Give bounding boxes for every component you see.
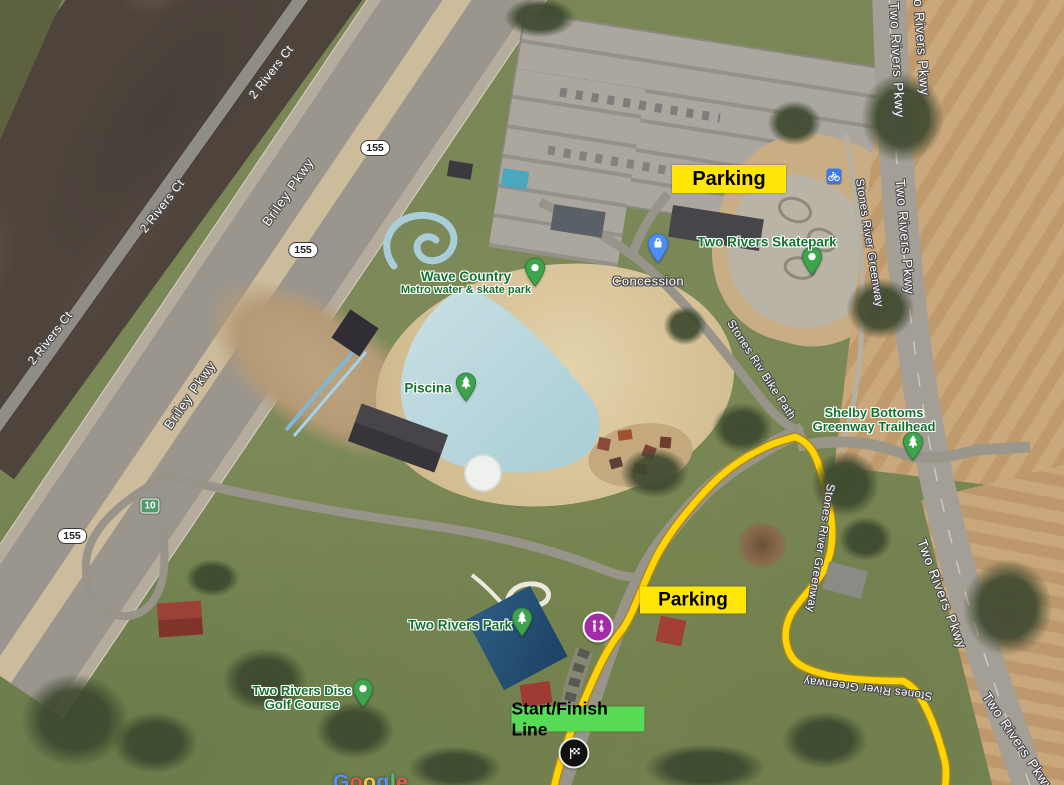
piscina-pin[interactable]: [456, 372, 477, 407]
skatepark-pin[interactable]: [802, 246, 823, 281]
concession-pin[interactable]: [647, 233, 669, 268]
bicycle-icon: [828, 170, 841, 183]
tree-cluster: [607, 438, 702, 508]
lot-cars-row-1: [560, 92, 720, 118]
parking-annotation: Parking: [672, 165, 786, 193]
poi-subtitle: Metro water & skate park: [381, 284, 551, 296]
tree-cluster: [175, 552, 250, 604]
tree-cluster: [945, 540, 1064, 675]
watermark-letter: o: [363, 771, 376, 785]
watermark-letter: e: [396, 771, 408, 785]
poi-label-wave-country[interactable]: Wave Country Metro water & skate park: [381, 270, 551, 296]
bike-trail-icon[interactable]: [827, 169, 842, 184]
skate-bowl-1: [776, 194, 814, 226]
tree-cluster: [700, 393, 785, 463]
route-shield-155: 155: [360, 140, 390, 156]
red-cabin-west: [157, 601, 203, 638]
parking-annotation: Parking: [640, 587, 746, 614]
shopping-bag-pin-icon: [647, 233, 669, 263]
restroom-icon[interactable]: [583, 612, 614, 643]
start-finish-annotation: Start/Finish Line: [512, 707, 645, 732]
checkered-flag-icon: [566, 745, 582, 761]
map-canvas[interactable]: 2 Rivers Ct 2 Rivers Ct 2 Rivers Ct Bril…: [0, 0, 1064, 785]
restroom-figures-icon: [590, 619, 607, 636]
finish-flag-marker: [559, 738, 590, 769]
map-pin-tree-icon: [456, 372, 477, 402]
tree-cluster: [757, 92, 832, 154]
route-shield-155: 155: [57, 528, 87, 544]
tree-cluster: [95, 700, 215, 785]
tree-cluster: [765, 700, 885, 780]
concession-label: Concession: [612, 274, 684, 289]
poi-label-two-rivers-disc-golf-course[interactable]: Two Rivers Disc Golf Course: [240, 684, 365, 712]
poi-label-shelby-bottoms-greenway-trailhead[interactable]: Shelby Bottoms Greenway Trailhead: [794, 406, 954, 434]
watermark-letter: G: [333, 771, 350, 785]
poi-label-piscina[interactable]: Piscina: [404, 382, 451, 397]
shelby-bottoms-pin[interactable]: [903, 431, 924, 466]
playground-piece: [617, 429, 632, 441]
tree-cluster: [828, 508, 903, 570]
small-pool: [501, 168, 529, 190]
route-shield-10: 10: [140, 499, 159, 514]
splash-circle: [464, 454, 502, 492]
lazy-river-water: [387, 215, 454, 266]
watermark-letter: g: [377, 771, 390, 785]
tree-cluster: [655, 298, 715, 353]
red-shed-east: [656, 616, 687, 647]
poi-name: Wave Country: [421, 269, 511, 284]
map-pin-icon: [802, 246, 823, 276]
map-pin-tree-icon: [903, 431, 924, 461]
poi-label-two-rivers-park[interactable]: Two Rivers Park: [390, 619, 530, 634]
poi-label-two-rivers-skatepark[interactable]: Two Rivers Skatepark: [667, 236, 867, 251]
watermark-letter: o: [350, 771, 363, 785]
waterslide-flume-1: [286, 346, 358, 430]
google-watermark: Google: [333, 771, 408, 785]
picnic-shelter: [737, 523, 787, 567]
route-shield-155: 155: [288, 242, 318, 258]
playground-piece: [597, 437, 611, 451]
